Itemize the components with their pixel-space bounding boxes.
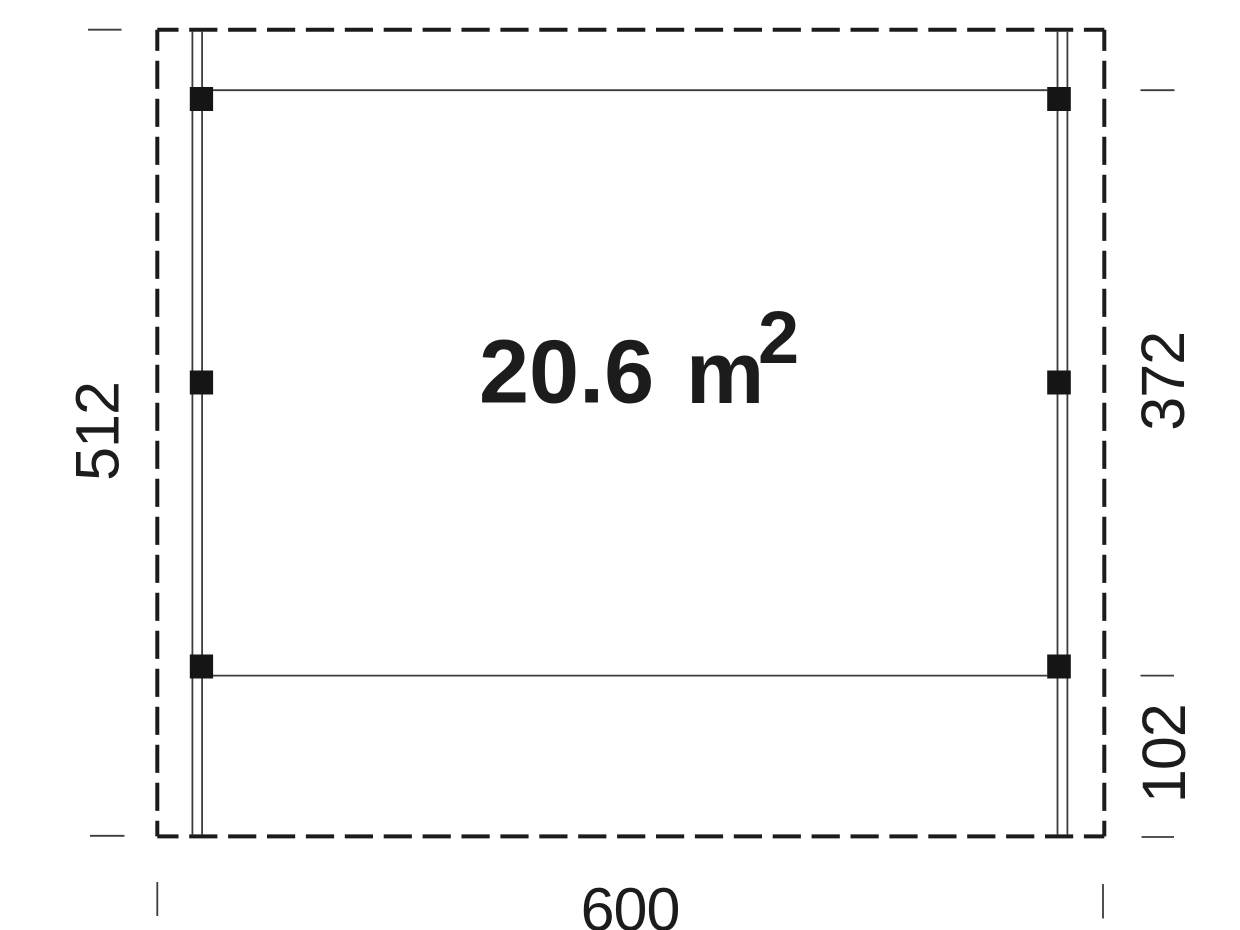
svg-text:20.6: 20.6 <box>479 323 654 423</box>
svg-text:600: 600 <box>581 875 680 930</box>
svg-text:m: m <box>686 323 764 422</box>
svg-text:2: 2 <box>758 296 799 379</box>
svg-text:512: 512 <box>64 382 132 481</box>
svg-text:102: 102 <box>1130 704 1198 803</box>
svg-text:372: 372 <box>1129 332 1197 431</box>
